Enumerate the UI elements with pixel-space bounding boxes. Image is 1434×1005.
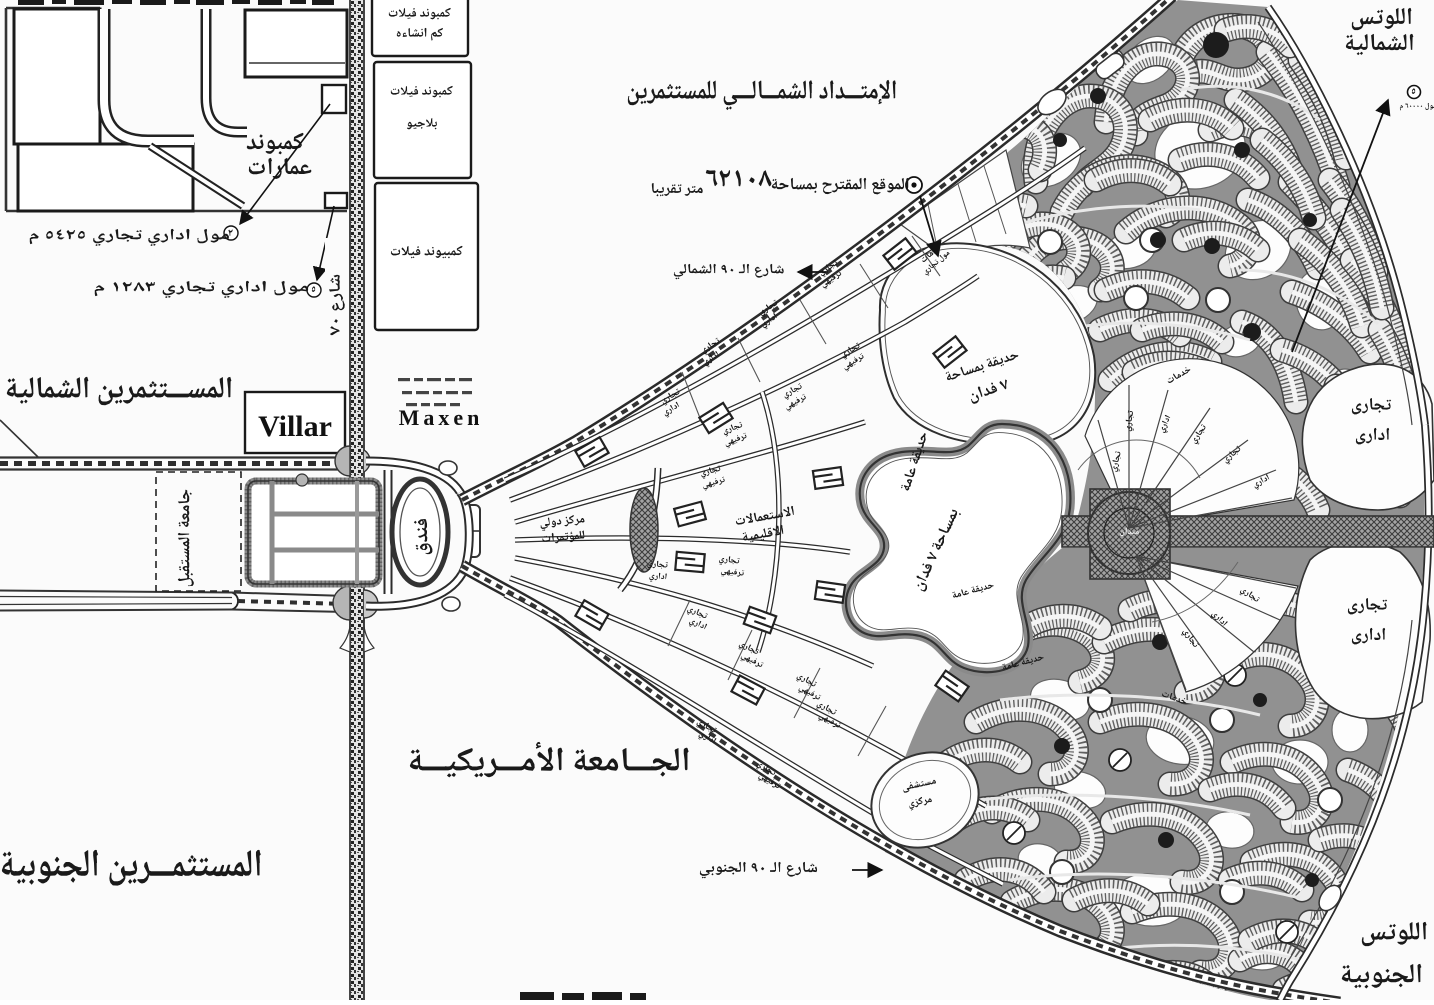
svg-text:Maxen: Maxen	[399, 405, 484, 430]
svg-text:Villar: Villar	[258, 410, 332, 443]
